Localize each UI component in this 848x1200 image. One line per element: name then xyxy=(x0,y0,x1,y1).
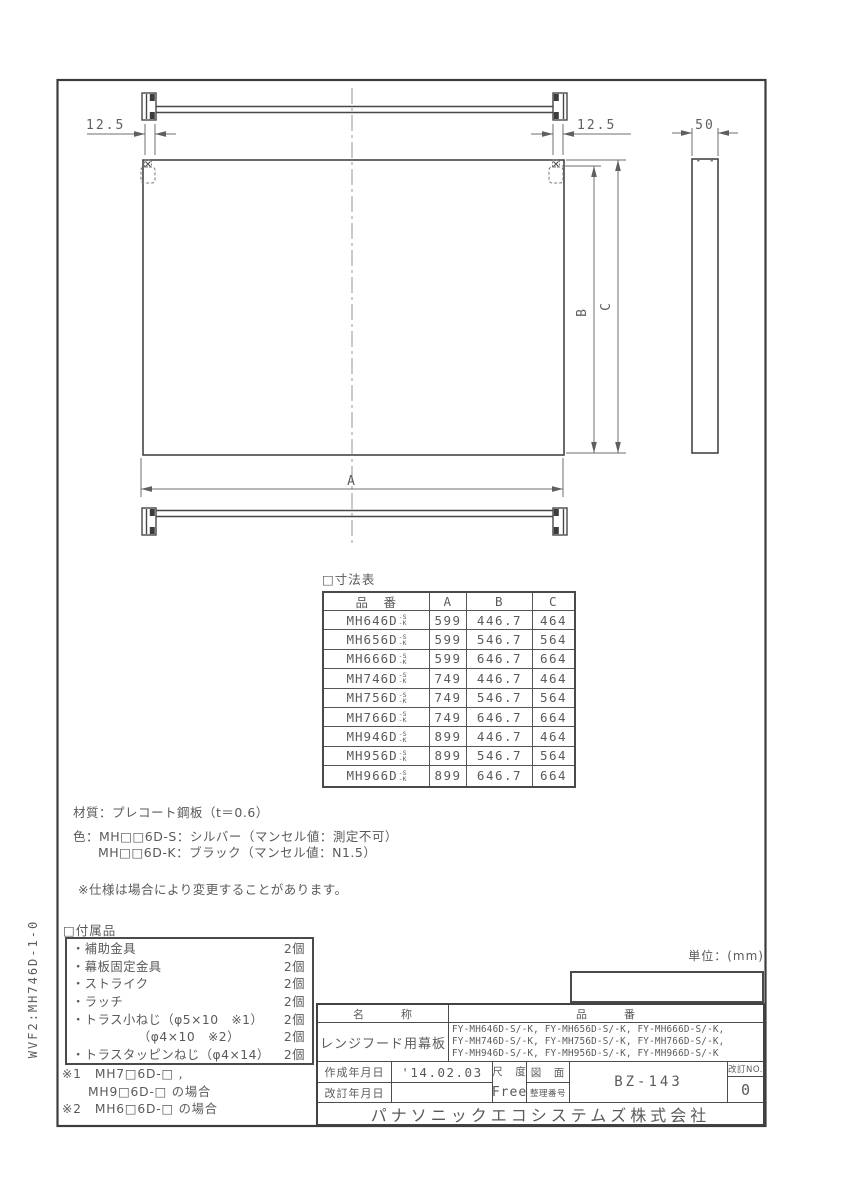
cell-c: 464 xyxy=(533,669,574,688)
color-note-black: MH□□6D-K：ブラック（マンセル値：N1.5） xyxy=(98,842,376,861)
scale-cell: 尺 度 Free xyxy=(493,1062,527,1103)
accessory-item: ・トラス小ねじ（φ5×10 ※1）2個 xyxy=(67,1010,312,1028)
part-number-list: FY-MH646D-S/-K, FY-MH656D-S/-K, FY-MH666… xyxy=(449,1023,763,1062)
dim-table-row: MH956D-S-K899546.7564 xyxy=(324,747,574,766)
cell-a: 899 xyxy=(430,727,467,746)
company-name: パナソニックエコシステムズ株式会社 xyxy=(318,1103,763,1124)
cell-b: 446.7 xyxy=(467,669,533,688)
accessory-item: ・幕板固定金具2個 xyxy=(67,957,312,975)
col-header-a: A xyxy=(430,593,467,611)
bottom-view xyxy=(142,508,567,535)
accessory-item: ・補助金具2個 xyxy=(67,939,312,957)
cell-b: 546.7 xyxy=(467,747,533,766)
cell-b: 646.7 xyxy=(467,708,533,727)
cell-model: MH666D-S-K xyxy=(324,650,430,669)
accessory-label: ・ラッチ xyxy=(72,992,123,1010)
revision-no-label: 改訂NO. xyxy=(728,1062,763,1077)
dim-label-B: B xyxy=(575,307,590,317)
col-header-c: C xyxy=(533,593,574,611)
cell-c: 564 xyxy=(533,747,574,766)
cell-model: MH946D-S-K xyxy=(324,727,430,746)
pn-line-3: FY-MH946D-S/-K, FY-MH956D-S/-K, FY-MH966… xyxy=(452,1048,719,1060)
footnote-1-line1: ※1 MH7□6D-□ , xyxy=(62,1066,218,1084)
dim-label-50: 50 xyxy=(695,118,715,133)
cell-c: 564 xyxy=(533,630,574,649)
col-header-b: B xyxy=(467,593,533,611)
cell-c: 664 xyxy=(533,766,574,785)
accessory-item: ・ラッチ2個 xyxy=(67,992,312,1010)
pn-line-1: FY-MH646D-S/-K, FY-MH656D-S/-K, FY-MH666… xyxy=(452,1024,724,1036)
side-view xyxy=(692,159,718,453)
dim-table-row: MH646D-S-K599446.7464 xyxy=(324,611,574,630)
cell-c: 464 xyxy=(533,611,574,630)
accessory-label: ・ストライク xyxy=(72,974,149,992)
cell-c: 464 xyxy=(533,727,574,746)
name-header: 名 称 xyxy=(318,1005,449,1023)
dim-table-row: MH766D-S-K749646.7664 xyxy=(324,708,574,727)
cell-b: 446.7 xyxy=(467,727,533,746)
accessory-label: ・トラス小ねじ（φ5×10 ※1） xyxy=(72,1010,263,1028)
reference-number-label: 整理番号 xyxy=(527,1083,570,1103)
accessory-qty: 2個 xyxy=(284,957,305,975)
cell-c: 564 xyxy=(533,689,574,708)
cell-a: 749 xyxy=(430,708,467,727)
technical-drawing-sheet: 12.5 12.5 50 A B C WVF2:MH746D-1-0 □寸法表 … xyxy=(0,0,848,1200)
drawing-number: BZ-143 xyxy=(570,1062,728,1103)
spec-disclaimer: ※仕様は場合により変更することがあります。 xyxy=(78,879,347,898)
revised-date-label: 改訂年月日 xyxy=(318,1083,392,1103)
cell-a: 749 xyxy=(430,689,467,708)
cell-b: 546.7 xyxy=(467,630,533,649)
unit-note: 単位：(mm) xyxy=(640,947,764,964)
material-note: 材質：プレコート鋼板（t＝0.6） xyxy=(73,802,269,821)
cell-a: 599 xyxy=(430,611,467,630)
revised-date-value xyxy=(392,1083,493,1103)
accessory-item: （φ4×10 ※2）2個 xyxy=(67,1027,312,1045)
dim-table-row: MH966D-S-K899646.7664 xyxy=(324,766,574,785)
accessory-label: ・補助金具 xyxy=(72,939,136,957)
title-block: 名 称 品 番 レンジフード用幕板 FY-MH646D-S/-K, FY-MH6… xyxy=(316,1003,765,1126)
dim-table-row: MH656D-S-K599546.7564 xyxy=(324,630,574,649)
cell-b: 446.7 xyxy=(467,611,533,630)
corner-hole-detail-right xyxy=(549,160,563,183)
cell-model: MH646D-S-K xyxy=(324,611,430,630)
dim-label-12-5-left: 12.5 xyxy=(86,118,125,133)
accessory-qty: 2個 xyxy=(284,1027,305,1045)
dim-table-row: MH946D-S-K899446.7464 xyxy=(324,727,574,746)
dim-table-row: MH746D-S-K749446.7464 xyxy=(324,669,574,688)
cell-model: MH966D-S-K xyxy=(324,766,430,785)
cell-a: 599 xyxy=(430,650,467,669)
cell-a: 899 xyxy=(430,747,467,766)
cell-a: 599 xyxy=(430,630,467,649)
scale-label: 尺 度 xyxy=(492,1064,527,1079)
cell-a: 749 xyxy=(430,669,467,688)
cell-model: MH766D-S-K xyxy=(324,708,430,727)
accessory-label: ・トラスタッピンねじ（φ4×14） xyxy=(72,1045,270,1063)
dim-table-title: □寸法表 xyxy=(322,569,375,588)
drawing-label: 図 面 xyxy=(527,1062,570,1083)
dim-table-header: 品 番 A B C xyxy=(324,593,574,611)
accessory-item: ・ストライク2個 xyxy=(67,974,312,992)
scale-value: Free xyxy=(492,1085,527,1100)
revision-no-value: 0 xyxy=(728,1077,763,1103)
part-number-header: 品 番 xyxy=(449,1005,763,1023)
accessory-label: ・幕板固定金具 xyxy=(72,957,162,975)
cell-model: MH656D-S-K xyxy=(324,630,430,649)
cell-a: 899 xyxy=(430,766,467,785)
accessory-qty: 2個 xyxy=(284,992,305,1010)
cell-model: MH746D-S-K xyxy=(324,669,430,688)
created-date-value: '14.02.03 xyxy=(392,1062,493,1083)
dim-label-C: C xyxy=(599,301,614,311)
dim-table-row: MH666D-S-K599646.7664 xyxy=(324,650,574,669)
dimension-lines xyxy=(87,124,738,497)
cell-b: 546.7 xyxy=(467,689,533,708)
cell-b: 646.7 xyxy=(467,766,533,785)
cell-model: MH956D-S-K xyxy=(324,747,430,766)
dim-label-A: A xyxy=(347,474,357,489)
footnote-1-line2: MH9□6D-□ の場合 xyxy=(88,1084,218,1102)
footnote-2: ※2 MH6□6D-□ の場合 xyxy=(62,1101,218,1119)
product-name: レンジフード用幕板 xyxy=(318,1023,449,1062)
accessories-box: ・補助金具2個・幕板固定金具2個・ストライク2個・ラッチ2個・トラス小ねじ（φ5… xyxy=(65,937,314,1065)
cell-c: 664 xyxy=(533,708,574,727)
dim-table: 品 番 A B C MH646D-S-K599446.7464MH656D-S-… xyxy=(322,591,576,788)
sheet-code-vertical: WVF2:MH746D-1-0 xyxy=(26,869,40,1109)
front-view-panel xyxy=(143,160,564,455)
created-date-label: 作成年月日 xyxy=(318,1062,392,1083)
cell-b: 646.7 xyxy=(467,650,533,669)
cell-model: MH756D-S-K xyxy=(324,689,430,708)
cell-c: 664 xyxy=(533,650,574,669)
col-header-model: 品 番 xyxy=(324,593,430,611)
accessory-qty: 2個 xyxy=(284,1010,305,1028)
title-block-spacer-cell xyxy=(570,971,764,1003)
accessory-qty: 2個 xyxy=(284,939,305,957)
accessory-item: ・トラスタッピンねじ（φ4×14）2個 xyxy=(67,1045,312,1063)
accessory-footnotes: ※1 MH7□6D-□ , MH9□6D-□ の場合 ※2 MH6□6D-□ の… xyxy=(62,1066,218,1119)
top-view xyxy=(142,93,567,120)
accessory-label: （φ4×10 ※2） xyxy=(138,1027,240,1045)
accessory-qty: 2個 xyxy=(284,974,305,992)
accessory-qty: 2個 xyxy=(284,1045,305,1063)
pn-line-2: FY-MH746D-S/-K, FY-MH756D-S/-K, FY-MH766… xyxy=(452,1036,724,1048)
dim-label-12-5-right: 12.5 xyxy=(577,118,616,133)
dim-table-row: MH756D-S-K749546.7564 xyxy=(324,689,574,708)
